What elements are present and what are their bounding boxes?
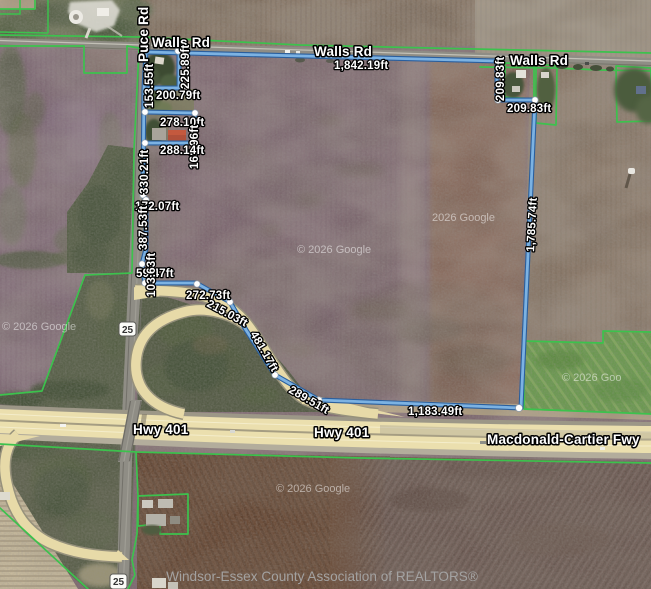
svg-text:Hwy 401: Hwy 401 [314,425,370,440]
svg-text:25: 25 [122,325,134,336]
svg-text:Windsor-Essex County Associati: Windsor-Essex County Association of REAL… [166,569,478,584]
svg-text:153.55ft: 153.55ft [144,64,156,108]
svg-text:Puce Rd: Puce Rd [136,7,151,62]
svg-text:330.21ft: 330.21ft [139,150,151,194]
svg-text:1,183.49ft: 1,183.49ft [408,406,462,418]
svg-text:200.79ft: 200.79ft [156,90,200,102]
svg-text:Walls Rd: Walls Rd [510,53,568,68]
svg-text:209.83ft: 209.83ft [507,103,551,115]
svg-text:© 2026 Goo: © 2026 Goo [562,372,621,384]
svg-text:© 2026 Google: © 2026 Google [276,483,350,495]
svg-text:© 2026 Google: © 2026 Google [2,321,76,333]
svg-text:© 2026 Google: © 2026 Google [297,244,371,256]
svg-text:Walls Rd: Walls Rd [314,44,372,59]
svg-text:209.83ft: 209.83ft [495,57,507,101]
svg-text:288.14ft: 288.14ft [160,145,204,157]
svg-text:Hwy 401: Hwy 401 [133,422,189,437]
svg-text:387.53ft: 387.53ft [138,206,150,250]
svg-text:25: 25 [113,577,125,588]
svg-text:2026 Google: 2026 Google [432,212,495,224]
svg-text:1,842.19ft: 1,842.19ft [334,60,388,72]
svg-text:Macdonald-Cartier Fwy: Macdonald-Cartier Fwy [487,432,640,447]
svg-text:103.63ft: 103.63ft [146,253,158,297]
svg-text:225.89ft: 225.89ft [180,45,192,89]
